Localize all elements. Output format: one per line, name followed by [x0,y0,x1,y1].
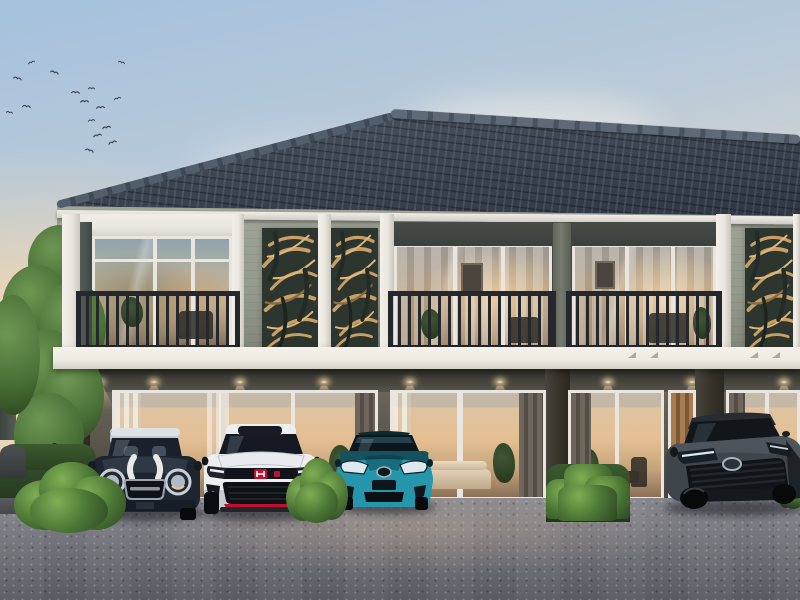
floor-slab-band [53,347,800,369]
car-grey-sedan [658,410,800,514]
car4-art [658,410,800,514]
balcony-railing-unit3 [566,291,722,350]
bird-icon [117,59,125,66]
bird-flock [0,30,180,180]
car-classic-mini-hatchback [86,424,204,522]
bird-icon [83,146,95,154]
curb [0,498,34,514]
car3-art [334,429,434,515]
bird-icon [22,103,32,109]
car2-art [202,424,320,519]
glass-door-unit3 [568,390,664,500]
bird-icon [88,86,95,91]
bird-icon [70,90,81,96]
bird-icon [107,139,117,147]
bird-icon [102,124,112,130]
patio-chair-silhouette [0,446,26,478]
car-teal-hybrid-hatchback [334,429,434,515]
bird-icon [95,105,106,111]
car-white-sport-hatchback [202,424,320,519]
balcony-railing-unit1 [76,291,240,350]
balcony-railing-unit2 [388,291,556,350]
townhouse-exterior-scene [0,0,800,600]
bird-icon [88,118,96,124]
bird-icon [113,95,121,102]
bird-icon [12,75,24,83]
bird-icon [6,109,14,115]
car1-art [86,424,204,522]
carport-soffit [57,368,800,392]
ground-pillar-middle [545,368,570,505]
bird-icon [80,99,89,104]
bird-icon [92,132,104,139]
bird-icon [49,69,59,76]
bird-icon [27,59,35,66]
